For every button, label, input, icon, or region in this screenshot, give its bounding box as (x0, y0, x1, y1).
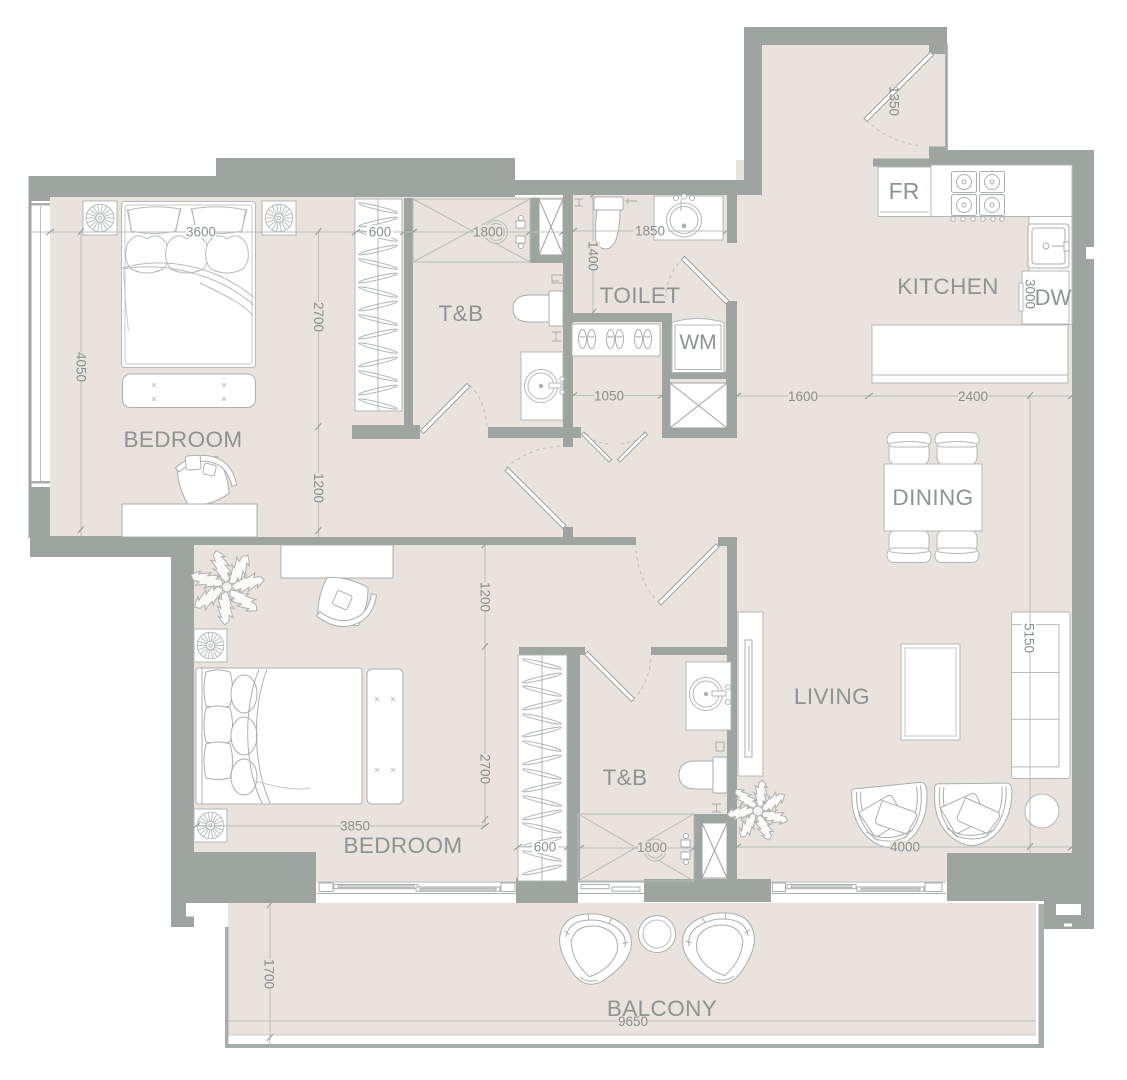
svg-text:T&B: T&B (439, 301, 484, 326)
svg-text:2700: 2700 (477, 754, 492, 784)
svg-text:BALCONY: BALCONY (607, 996, 717, 1021)
svg-text:1050: 1050 (594, 389, 624, 404)
svg-text:4050: 4050 (73, 352, 88, 382)
svg-text:3000: 3000 (1022, 279, 1037, 309)
svg-text:600: 600 (534, 840, 557, 855)
svg-text:KITCHEN: KITCHEN (897, 274, 999, 299)
svg-text:3850: 3850 (340, 819, 370, 834)
svg-text:2700: 2700 (311, 302, 326, 332)
svg-text:DINING: DINING (892, 485, 973, 510)
svg-text:3600: 3600 (186, 225, 216, 240)
svg-text:600: 600 (369, 225, 392, 240)
svg-text:FR: FR (889, 178, 920, 204)
svg-text:T&B: T&B (603, 765, 648, 790)
svg-text:DW: DW (1035, 285, 1072, 310)
svg-text:1850: 1850 (635, 224, 665, 239)
svg-text:WM: WM (679, 331, 716, 354)
svg-text:1800: 1800 (473, 225, 503, 240)
svg-text:2400: 2400 (958, 389, 988, 404)
svg-text:BEDROOM: BEDROOM (123, 427, 242, 452)
svg-text:LIVING: LIVING (794, 684, 870, 709)
svg-text:BEDROOM: BEDROOM (343, 833, 462, 858)
svg-text:4000: 4000 (890, 840, 920, 855)
svg-text:1400: 1400 (585, 241, 600, 271)
svg-text:1200: 1200 (311, 473, 326, 503)
svg-text:1800: 1800 (637, 840, 667, 855)
svg-text:1700: 1700 (261, 959, 276, 989)
svg-text:1350: 1350 (886, 86, 901, 116)
svg-text:TOILET: TOILET (600, 283, 681, 308)
svg-text:1200: 1200 (477, 582, 492, 612)
svg-text:1600: 1600 (788, 389, 818, 404)
svg-text:5150: 5150 (1021, 623, 1036, 653)
